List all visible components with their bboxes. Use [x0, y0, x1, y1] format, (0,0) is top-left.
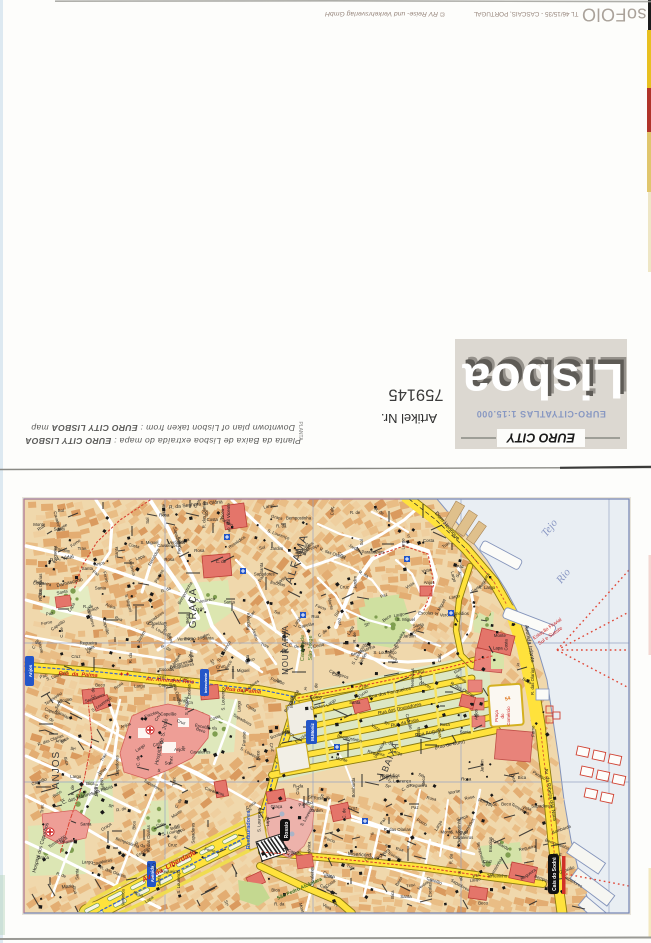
svg-text:Stº: Stº [308, 795, 314, 800]
svg-text:Jardim: Jardim [310, 808, 323, 813]
svg-text:Anjos: Anjos [474, 709, 479, 720]
svg-text:do: do [500, 713, 505, 719]
svg-text:Restauradores: Restauradores [246, 811, 252, 850]
svg-text:Escolas: Escolas [418, 611, 433, 616]
svg-text:Monte: Monte [33, 522, 46, 527]
svg-text:Liceu: Liceu [220, 508, 225, 519]
svg-text:Capelão: Capelão [160, 711, 177, 716]
svg-text:R. da: R. da [448, 853, 453, 864]
svg-text:Comércio: Comércio [506, 706, 511, 726]
svg-text:Paz: Paz [411, 805, 418, 810]
svg-text:C. de: C. de [341, 808, 346, 819]
svg-text:EURO CITY: EURO CITY [505, 431, 575, 445]
svg-text:Bica: Bica [518, 775, 527, 780]
svg-text:Bica: Bica [132, 821, 137, 830]
svg-text:Trav.: Trav. [78, 546, 87, 551]
svg-text:Santa: Santa [400, 894, 412, 899]
svg-text:R. das Olarias: R. das Olarias [38, 574, 43, 601]
svg-text:Forno: Forno [530, 725, 535, 737]
svg-text:Paraiso: Paraiso [242, 731, 247, 746]
svg-text:Praça: Praça [494, 710, 499, 722]
svg-text:Sol: Sol [165, 761, 171, 766]
svg-text:C. de: C. de [314, 683, 319, 694]
svg-text:Santa: Santa [80, 822, 92, 827]
svg-text:Monte: Monte [494, 633, 507, 638]
svg-text:S. Miguel: S. Miguel [397, 617, 415, 622]
svg-text:Costa: Costa [33, 580, 45, 585]
svg-text:Largo: Largo [236, 700, 241, 712]
svg-text:Lapa: Lapa [493, 646, 503, 651]
svg-text:MOURARIA: MOURARIA [281, 625, 290, 675]
svg-text:Anjos: Anjos [424, 580, 435, 585]
svg-text:Rosa: Rosa [164, 557, 175, 562]
svg-text:Intendente: Intendente [203, 672, 208, 693]
svg-text:S. Miguel: S. Miguel [450, 830, 468, 835]
svg-text:Bica: Bica [390, 890, 395, 899]
svg-text:Largo: Largo [484, 585, 496, 590]
svg-text:Regueira: Regueira [245, 612, 250, 630]
svg-text:S. Miguel: S. Miguel [232, 668, 250, 673]
svg-text:R. de: R. de [350, 510, 361, 515]
svg-text:Planta da Baixa de Lisboa extr: Planta da Baixa de Lisboa extraída do ma… [25, 436, 301, 446]
svg-text:Sol: Sol [359, 539, 364, 545]
svg-text:Paz: Paz [457, 564, 464, 569]
svg-text:Rosa: Rosa [194, 548, 205, 553]
svg-text:Santa: Santa [95, 586, 107, 591]
svg-text:Terreirinho: Terreirinho [487, 873, 508, 878]
svg-text:Regueira: Regueira [410, 783, 428, 788]
svg-text:Cavaleiros: Cavaleiros [453, 835, 473, 840]
svg-text:Santa: Santa [460, 730, 472, 735]
svg-text:R. da: R. da [274, 901, 285, 906]
svg-text:Forno: Forno [184, 636, 196, 641]
svg-text:Lisboa: Lisboa [461, 353, 623, 409]
svg-text:Bombarda: Bombarda [351, 777, 356, 797]
svg-text:Santa: Santa [75, 868, 80, 880]
svg-text:S. Miguel: S. Miguel [184, 697, 189, 715]
svg-text:Cruz: Cruz [483, 859, 492, 864]
svg-text:R. de: R. de [352, 632, 357, 643]
svg-text:Largo: Largo [401, 538, 406, 550]
svg-text:Escolas: Escolas [428, 882, 433, 897]
svg-text:Verónica: Verónica [120, 889, 125, 906]
svg-text:Jardim: Jardim [403, 634, 416, 639]
svg-text:Cruz: Cruz [295, 786, 300, 795]
svg-text:Cavaleiros: Cavaleiros [190, 750, 210, 755]
svg-text:C. de: C. de [59, 627, 64, 638]
svg-text:Beco: Beco [95, 683, 105, 688]
svg-text:© RV Reise- und Verkehrsverlag: © RV Reise- und Verkehrsverlag GmbH [325, 10, 445, 18]
svg-text:Gil Vicente: Gil Vicente [226, 503, 231, 525]
svg-text:Costa: Costa [504, 639, 509, 651]
svg-text:Trav.: Trav. [39, 804, 44, 813]
svg-text:Bempostinha: Bempostinha [286, 515, 312, 520]
svg-text:Santa: Santa [114, 546, 119, 558]
svg-text:Bica: Bica [271, 888, 280, 893]
svg-text:Cruz: Cruz [168, 842, 177, 847]
svg-text:S.: S. [407, 534, 411, 539]
svg-text:Largo: Largo [134, 684, 146, 689]
svg-text:Sapadores: Sapadores [190, 823, 195, 844]
svg-text:Calç.: Calç. [329, 506, 334, 516]
svg-text:Cruz: Cruz [71, 654, 80, 659]
svg-text:Santa: Santa [224, 599, 236, 604]
svg-text:M.Moniz: M.Moniz [310, 722, 315, 740]
svg-text:Escolas: Escolas [186, 684, 191, 699]
svg-text:Regueira: Regueira [80, 640, 98, 645]
svg-text:759145: 759145 [388, 386, 443, 404]
svg-text:C. de: C. de [136, 755, 141, 766]
svg-text:ANJOS: ANJOS [51, 751, 62, 789]
svg-text:Paraiso: Paraiso [362, 550, 377, 555]
svg-text:EURO-CITYATLAS 1:15.000: EURO-CITYATLAS 1:15.000 [476, 409, 606, 419]
svg-text:Costa: Costa [423, 538, 435, 543]
svg-text:GRAÇA: GRAÇA [188, 588, 199, 629]
svg-text:soFOlO: soFOlO [581, 5, 646, 25]
svg-text:Costa: Costa [207, 517, 219, 522]
svg-text:Largo: Largo [70, 774, 82, 779]
svg-text:Beco: Beco [501, 802, 511, 807]
svg-text:Rossio: Rossio [284, 822, 290, 839]
svg-text:Sapadores: Sapadores [254, 572, 275, 577]
svg-text:Cruz: Cruz [348, 805, 357, 810]
svg-text:TL 46/15/35 - CASCAIS, PORTUGA: TL 46/15/35 - CASCAIS, PORTUGAL [473, 10, 578, 17]
svg-text:Beco: Beco [478, 901, 488, 906]
svg-text:R. da: R. da [128, 652, 133, 663]
svg-text:C. de: C. de [91, 687, 96, 698]
svg-text:Jardim: Jardim [353, 575, 358, 588]
svg-text:São Jorge: São Jorge [308, 635, 314, 660]
svg-text:Rua: Rua [311, 614, 319, 619]
svg-text:Castelo de: Castelo de [300, 635, 306, 661]
svg-text:Santa: Santa [82, 566, 94, 571]
svg-text:Forno: Forno [311, 695, 323, 700]
svg-text:Cais do Sodré: Cais do Sodré [552, 857, 558, 891]
svg-text:S. Miguel: S. Miguel [141, 540, 159, 545]
svg-text:S.: S. [182, 745, 186, 750]
svg-text:Lapa: Lapa [265, 816, 270, 826]
svg-text:Downtown plan of Lisbon taken: Downtown plan of Lisbon taken from : EUR… [31, 423, 295, 433]
svg-text:Graça: Graça [413, 669, 425, 674]
svg-text:Artikel Nr.: Artikel Nr. [381, 411, 437, 426]
svg-text:Cruz: Cruz [340, 585, 349, 590]
svg-text:PLANTA: PLANTA [297, 421, 303, 441]
svg-text:S. Lourenço: S. Lourenço [257, 808, 262, 832]
svg-text:Sol: Sol [145, 518, 150, 524]
svg-text:Anjos: Anjos [28, 664, 33, 677]
svg-text:Bica: Bica [86, 781, 95, 786]
svg-text:Santa: Santa [349, 700, 361, 705]
svg-text:Calç.: Calç. [437, 653, 442, 663]
